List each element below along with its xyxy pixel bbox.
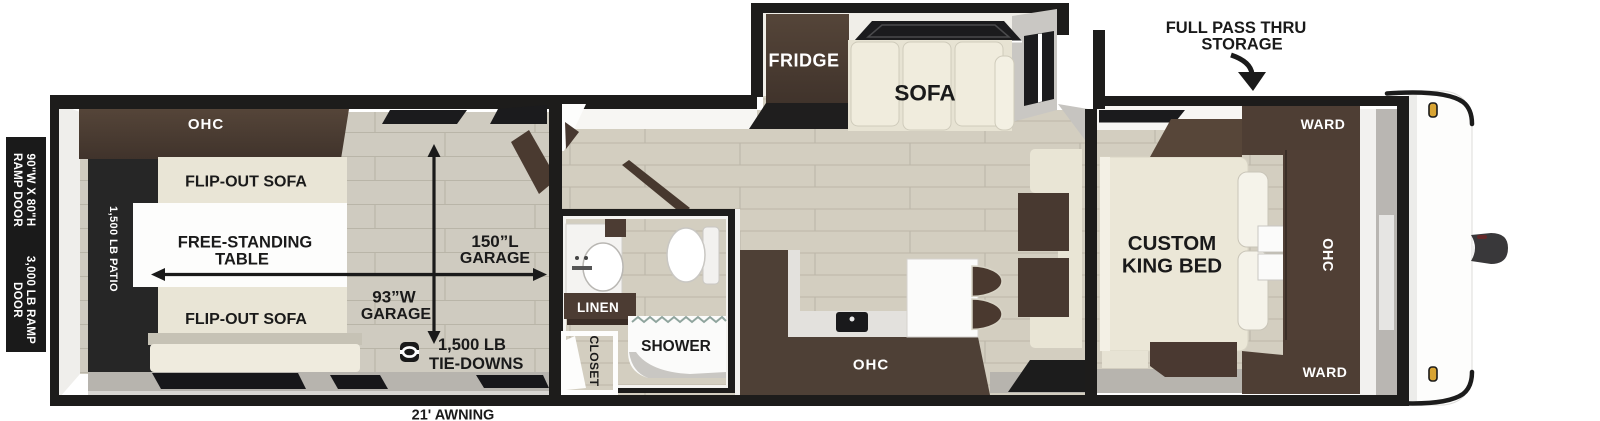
svg-text:SOFA: SOFA: [894, 81, 955, 106]
svg-text:KING BED: KING BED: [1122, 255, 1222, 278]
svg-text:150”L: 150”L: [471, 232, 518, 251]
svg-text:OHC: OHC: [188, 116, 224, 133]
svg-text:CUSTOM: CUSTOM: [1128, 232, 1216, 255]
svg-text:DOOR: DOOR: [11, 282, 23, 318]
svg-text:STORAGE: STORAGE: [1201, 36, 1282, 54]
svg-text:GARAGE: GARAGE: [361, 306, 432, 323]
svg-text:TABLE: TABLE: [215, 251, 269, 269]
svg-text:WARD: WARD: [1303, 364, 1348, 380]
svg-text:1,500 LB PATIO: 1,500 LB PATIO: [107, 206, 119, 292]
svg-text:FRIDGE: FRIDGE: [768, 51, 839, 71]
svg-text:1,500 LB: 1,500 LB: [438, 336, 506, 354]
svg-text:FLIP-OUT SOFA: FLIP-OUT SOFA: [185, 174, 307, 191]
svg-text:TIE-DOWNS: TIE-DOWNS: [429, 355, 523, 373]
svg-text:GARAGE: GARAGE: [460, 250, 531, 267]
svg-text:FLIP-OUT SOFA: FLIP-OUT SOFA: [185, 311, 307, 328]
svg-text:WARD: WARD: [1301, 116, 1346, 132]
svg-text:3,000 LB RAMP: 3,000 LB RAMP: [24, 256, 36, 344]
svg-text:OHC: OHC: [853, 357, 889, 374]
svg-text:CLOSET: CLOSET: [587, 335, 601, 386]
svg-text:FREE-STANDING: FREE-STANDING: [178, 234, 312, 252]
svg-text:OHC: OHC: [1319, 238, 1335, 272]
svg-text:SHOWER: SHOWER: [641, 338, 711, 355]
svg-text:FULL PASS THRU: FULL PASS THRU: [1166, 19, 1307, 37]
svg-text:LINEN: LINEN: [577, 300, 619, 315]
svg-text:21' AWNING: 21' AWNING: [412, 408, 495, 421]
svg-text:93”W: 93”W: [372, 288, 416, 307]
svg-text:RAMP DOOR: RAMP DOOR: [11, 153, 23, 227]
svg-text:90"W X 80"H: 90"W X 80"H: [24, 153, 36, 226]
